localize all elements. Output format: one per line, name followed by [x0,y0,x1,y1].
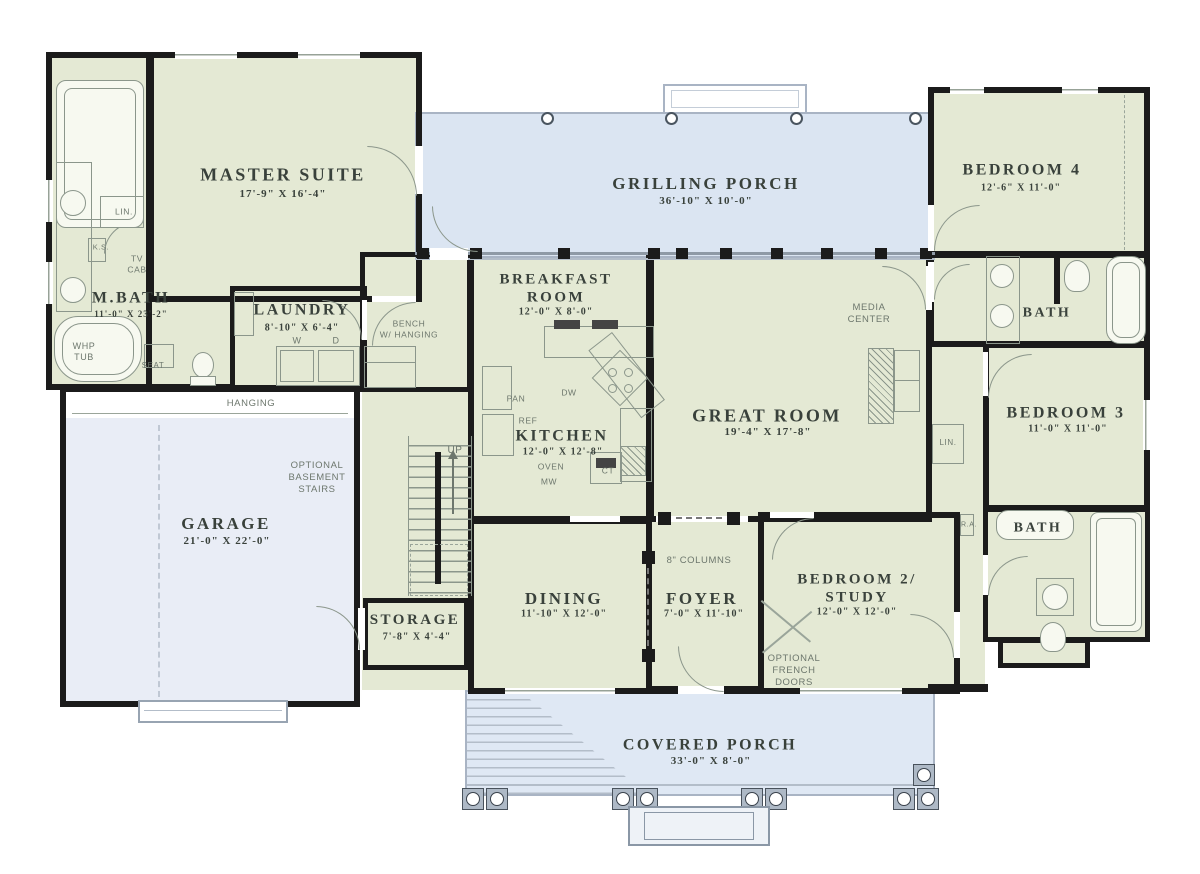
cooktop [554,320,580,329]
window-post [676,248,688,259]
colonnade-dash [676,517,722,519]
linen-label: LIN. [115,207,133,218]
refrigerator-label: REF [519,416,538,427]
porch-column [486,788,508,810]
porch-rail-line [467,784,933,786]
knee-space-label: K.S. [93,242,110,251]
optional-basement-label: OPTIONAL BASEMENT STAIRS [288,460,345,496]
bedroom2-dims: 12'-0" X 12'-0" [817,607,898,618]
master-bath-label: M.BATH [92,290,170,309]
burner [608,368,617,377]
window [46,262,53,304]
optional-french-label: OPTIONAL FRENCH DOORS [768,653,821,689]
broom-closet [234,292,254,336]
cooktop [592,320,618,329]
garage-door-bay [138,700,288,723]
door-opening [954,612,960,658]
media-center-cabinet [868,348,894,424]
porch-column [917,788,939,810]
vanity-sink [1042,584,1068,610]
bench-label: BENCH W/ HANGING [380,318,438,339]
hall-linen-label: LIN. [939,438,956,448]
window-post [720,248,732,259]
great-room-label: GREAT ROOM [692,405,842,426]
hanging-label: HANGING [227,398,276,410]
optional-stairs-dash [410,544,468,596]
column-circle [921,792,935,806]
bedroom3-label: BEDROOM 3 [1007,405,1126,424]
bath3-label: BATH [1014,521,1063,538]
columns-label: 8" COLUMNS [667,555,732,567]
door-opening [372,296,416,302]
window-post [771,248,783,259]
column [642,551,655,564]
window-post [648,248,660,259]
laundry-label: LAUNDRY [254,302,351,321]
toilet-tank [190,376,216,386]
porch-glass-wall [415,258,935,260]
porch-column [913,764,935,786]
porch-column [462,788,484,810]
master-suite-label: MASTER SUITE [200,164,366,185]
column-circle [769,792,783,806]
bath4-stub-wall [1054,252,1060,304]
column-circle [616,792,630,806]
up-label: UP [447,445,462,458]
burner [624,368,633,377]
kitchen-label: KITCHEN [515,428,608,447]
breakfast-room-dims: 12'-0" X 8'-0" [519,307,594,318]
vanity-sink [60,190,86,216]
porch-post [909,112,922,125]
shower-inner [1096,518,1136,626]
porch-column [893,788,915,810]
mud-bench-line [364,362,416,363]
laundry-dims: 8'-10" X 6'-4" [265,323,340,334]
column [658,512,671,525]
window [800,688,902,694]
master-suite-dims: 17'-9" X 16'-4" [239,188,326,200]
window [1062,87,1098,94]
window-post [875,248,887,259]
breakfast-room-label: BREAKFAST ROOM [499,271,612,306]
stair-arrow-line [452,458,454,514]
column-circle [745,792,759,806]
porch-post [665,112,678,125]
vanity-sink [990,304,1014,328]
column [727,512,740,525]
door-opening [926,266,932,310]
garage-door-line [144,710,282,711]
vanity-sink [990,264,1014,288]
oven-label: OVEN [538,462,565,473]
garage-label: GARAGE [181,514,271,534]
whirlpool-tub-label: WHP TUB [73,341,96,364]
garage-dims: 21'-0" X 22'-0" [183,535,270,547]
bedroom2-label: BEDROOM 2/ STUDY [797,571,917,606]
microwave-label: MW [541,477,557,488]
door-opening [983,352,988,396]
seat-label: SEAT [142,361,165,371]
storage-label: STORAGE [370,612,461,630]
porch-post [790,112,803,125]
burner [608,384,617,393]
window [175,52,237,59]
column-circle [640,792,654,806]
toilet [1040,622,1066,652]
cabinet-tower [620,446,646,476]
dining-label: DINING [525,589,603,609]
colonnade-dash [647,568,649,646]
garage-bay-dash [158,425,160,697]
pantry-label: PAN [507,394,526,405]
bedroom4-dims: 12'-6" X 11'-0" [981,183,1061,194]
column-circle [490,792,504,806]
storage-dims: 7'-8" X 4'-4" [383,632,452,643]
bathtub-inner [1112,262,1140,338]
bedroom3-dims: 11'-0" X 11'-0" [1028,424,1107,435]
column [642,649,655,662]
refrigerator [482,414,514,456]
bath4-label: BATH [1023,306,1072,323]
opening [570,516,620,522]
grilling-porch-label: GRILLING PORCH [612,174,800,194]
toilet [1064,260,1090,292]
grill-alcove-inner [671,90,799,108]
covered-porch-label: COVERED PORCH [623,737,797,756]
door-opening [362,300,367,340]
porch-post [541,112,554,125]
porch-glass-wall [415,252,935,255]
media-center-label: MEDIA CENTER [848,302,891,326]
door-opening [770,512,814,518]
front-steps-inner [644,812,754,840]
return-air-label: R.A. [961,522,977,531]
cabinet-tower-label: CT [602,466,615,477]
dryer [318,350,354,382]
floor-plan: MASTER SUITE 17'-9" X 16'-4" GRILLING PO… [0,0,1200,874]
window-post [417,248,429,259]
closet-dash [1124,95,1125,250]
window-post [558,248,570,259]
utility-chase [894,350,920,412]
vanity-sink [60,277,86,303]
bedroom4-label: BEDROOM 4 [963,162,1082,181]
dryer-label: D [332,335,339,346]
corridor-front-wall [928,684,988,692]
window [950,87,984,94]
grilling-porch-dims: 36'-10" X 10'-0" [659,195,753,207]
dining-dims: 11'-10" X 12'-0" [521,609,607,620]
burner [624,384,633,393]
great-room-dims: 19'-4" X 17'-8" [724,426,811,438]
window [46,180,53,222]
window [298,52,360,59]
column-circle [917,768,931,782]
column-circle [466,792,480,806]
washer-label: W [292,335,301,346]
mud-bench [364,346,416,388]
utility-chase-line [894,380,920,381]
tv-cabinet-label: TV CAB [127,253,146,274]
master-bath-dims: 11'-0" X 23'-2" [94,309,168,319]
dishwasher-label: DW [561,388,576,399]
column-circle [897,792,911,806]
door-opening [430,248,468,260]
window [1143,400,1150,450]
door-opening [928,205,934,251]
washer [280,350,314,382]
door-opening [983,555,988,595]
foyer-label: FOYER [666,589,738,609]
kitchen-dims: 12'-0" X 12'-8" [523,447,604,458]
toilet [192,352,214,378]
covered-porch-dims: 33'-0" X 8'-0" [671,755,752,767]
window-post [821,248,833,259]
foyer-dims: 7'-0" X 11'-10" [664,609,744,620]
